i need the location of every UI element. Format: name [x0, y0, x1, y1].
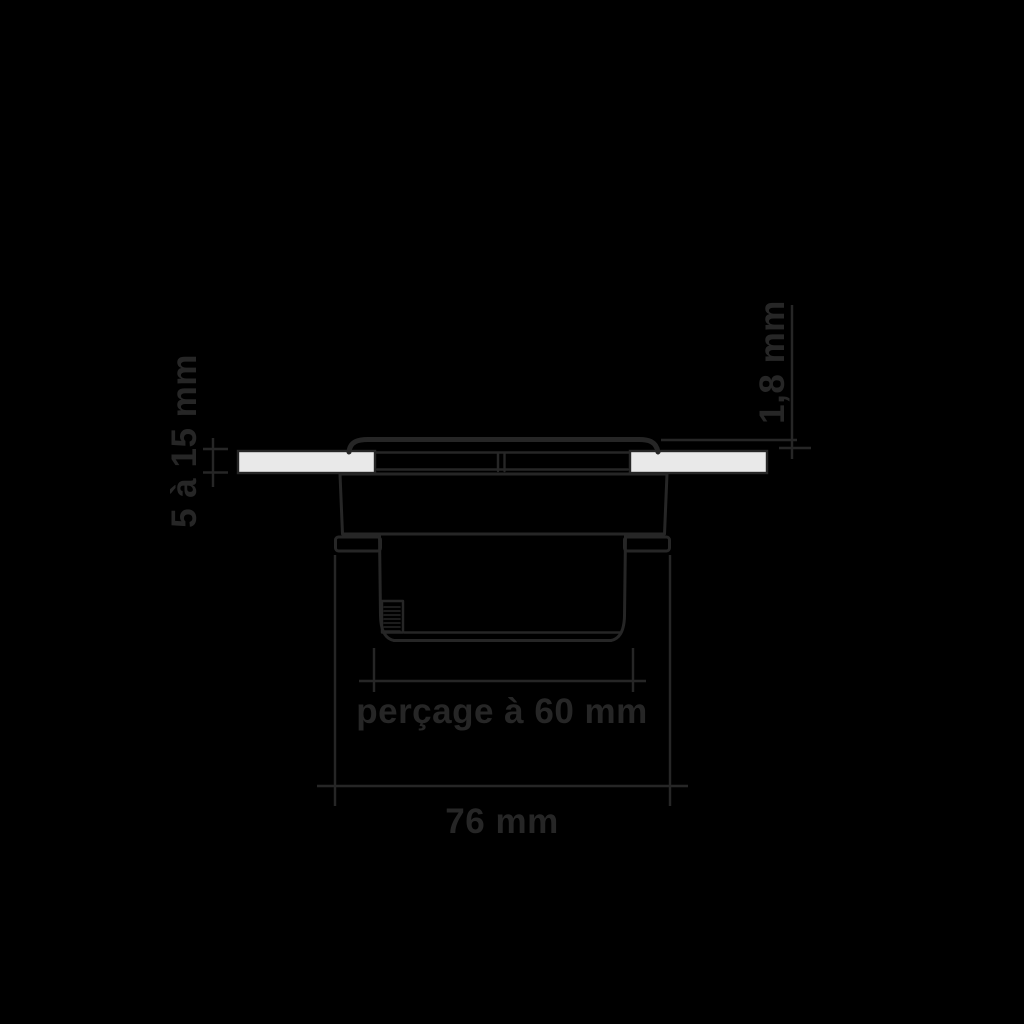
flange-thickness-label: 1,8 mm: [753, 300, 792, 424]
panel-thickness-label: 5 à 15 mm: [165, 354, 204, 528]
clamp-ring-outline: [340, 474, 667, 534]
clamp-screw-thread-hatch: [384, 607, 400, 631]
dimension-hole: perçage à 60 mm: [356, 648, 648, 731]
panel-left: [238, 451, 375, 473]
body-wall-right: [611, 535, 626, 641]
dimension-flange-thickness: 1,8 mm: [661, 300, 811, 459]
panel-right: [630, 451, 767, 473]
device-cross-section: [336, 440, 670, 641]
lock-tab-left: [336, 537, 381, 551]
overall-width-label: 76 mm: [445, 802, 558, 841]
technical-drawing: 5 à 15 mm 1,8 mm perçage à 60 mm 76 mm: [0, 0, 1024, 1024]
clamp-screw: [382, 601, 403, 633]
dimension-panel-thickness: 5 à 15 mm: [165, 354, 228, 528]
lock-tab-right: [625, 537, 670, 551]
diagram-canvas: 5 à 15 mm 1,8 mm perçage à 60 mm 76 mm: [0, 0, 1024, 1024]
flange-top-outline: [349, 440, 658, 453]
hole-label: perçage à 60 mm: [356, 692, 648, 731]
